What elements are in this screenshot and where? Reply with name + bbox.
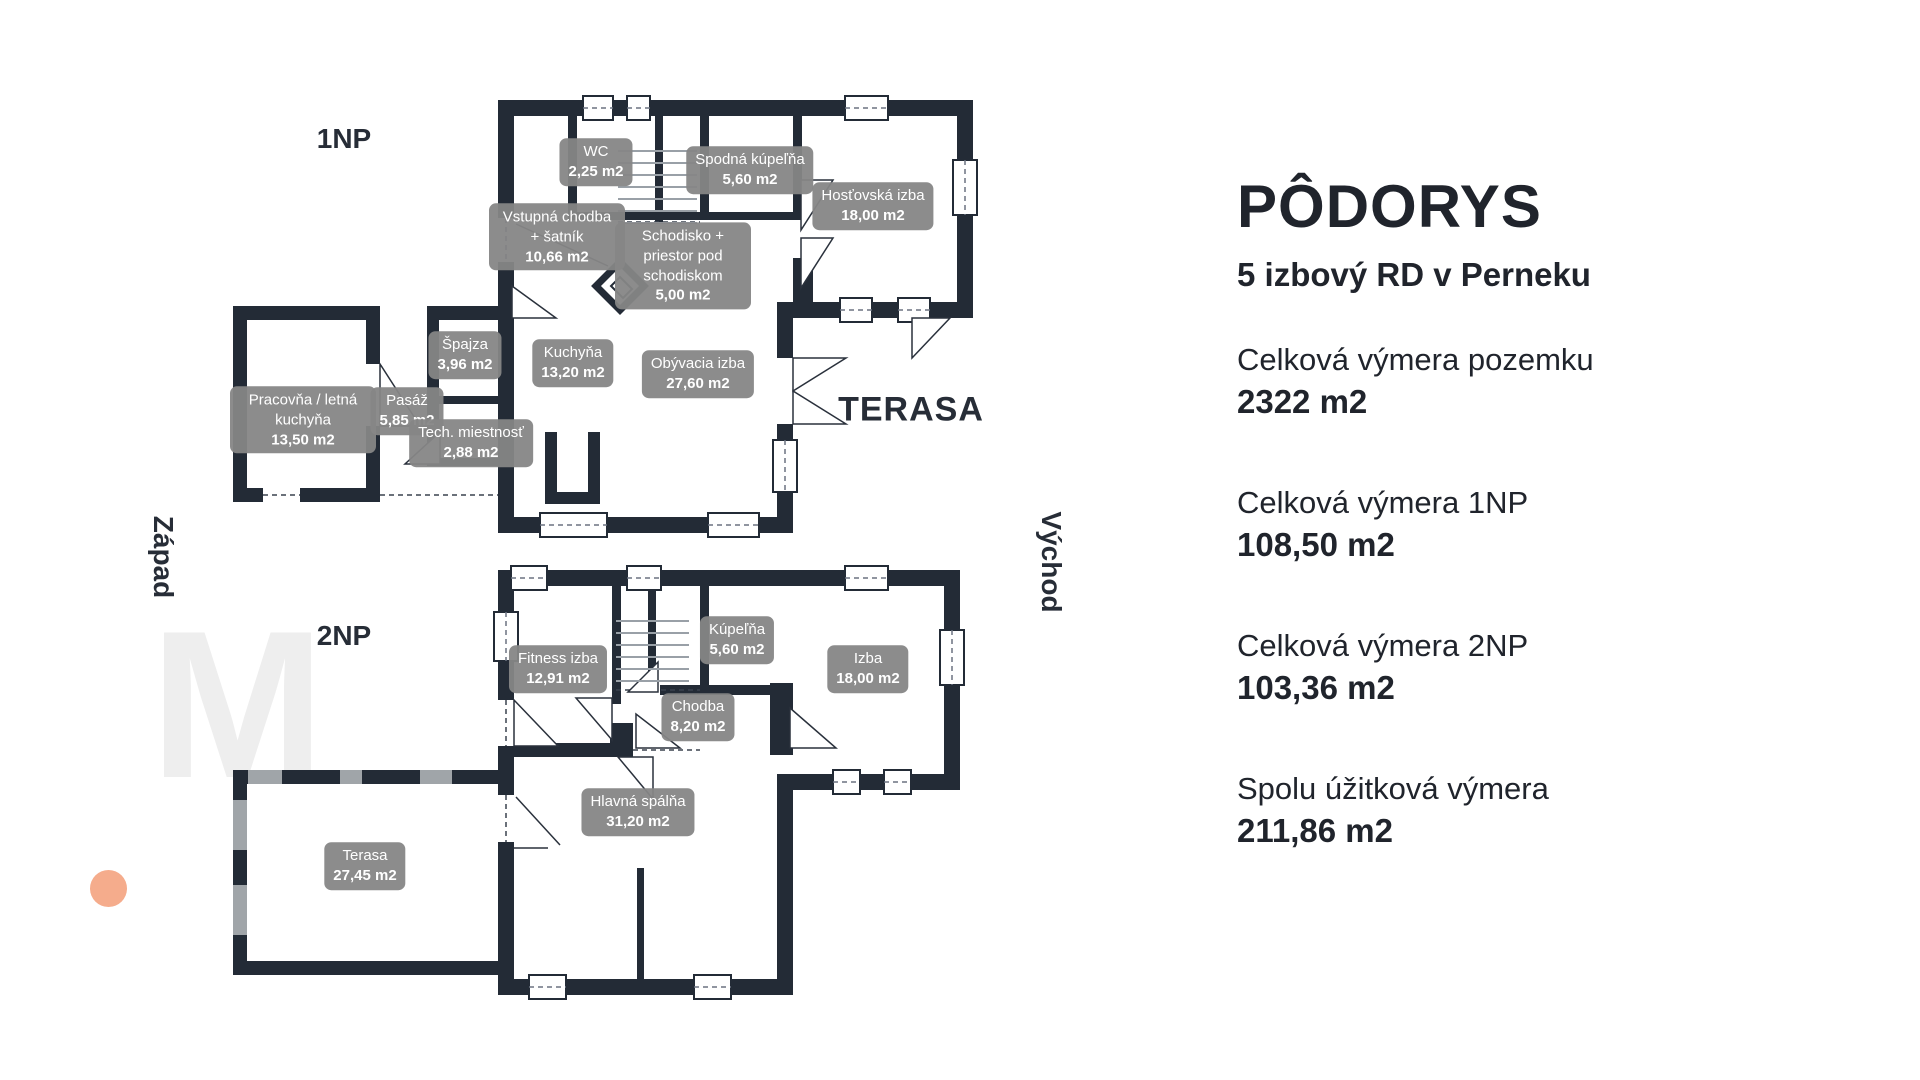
room-label-izba: Izba 18,00 m2 [827, 645, 908, 693]
room-label-vstupna-chodba: Vstupná chodba + šatník 10,66 m2 [489, 203, 625, 270]
stat-label: Celková výmera pozemku [1237, 340, 1797, 380]
page-title: PÔDORYS [1237, 172, 1542, 241]
room-label-spajza: Špajza 3,96 m2 [428, 331, 501, 379]
terrace-label: TERASA [838, 391, 984, 430]
room-label-tech-miestnost: Tech. miestnosť 2,88 m2 [409, 419, 533, 467]
room-label-hlavna-spalna: Hlavná spálňa 31,20 m2 [581, 788, 694, 836]
room-label-terasa: Terasa 27,45 m2 [324, 842, 405, 890]
stat-label: Celková výmera 2NP [1237, 626, 1797, 666]
stat-value: 211,86 m2 [1237, 809, 1797, 853]
stat-plot-area: Celková výmera pozemku 2322 m2 [1237, 340, 1797, 424]
room-label-kupelna: Kúpeľňa 5,60 m2 [700, 616, 774, 664]
floor1-title: 1NP [317, 123, 371, 155]
room-label-wc: WC 2,25 m2 [559, 138, 632, 186]
stat-total-usable-area: Spolu úžitková výmera 211,86 m2 [1237, 769, 1797, 853]
room-label-spodna-kupelna: Spodná kúpeľňa 5,60 m2 [686, 146, 813, 194]
stairs-2np [616, 620, 689, 692]
stats-list: Celková výmera pozemku 2322 m2 Celková v… [1237, 340, 1797, 912]
stat-label: Celková výmera 1NP [1237, 483, 1797, 523]
room-label-chodba: Chodba 8,20 m2 [661, 693, 734, 741]
room-label-obyvacia-izba: Obývacia izba 27,60 m2 [642, 350, 754, 398]
room-label-kuchyna: Kuchyňa 13,20 m2 [532, 339, 613, 387]
stat-area-2np: Celková výmera 2NP 103,36 m2 [1237, 626, 1797, 710]
stat-value: 2322 m2 [1237, 380, 1797, 424]
stat-value: 103,36 m2 [1237, 666, 1797, 710]
room-label-fitness-izba: Fitness izba 12,91 m2 [509, 645, 607, 693]
floor2-title: 2NP [317, 620, 371, 652]
room-label-hostovska-izba: Hosťovská izba 18,00 m2 [812, 182, 933, 230]
accent-dot [90, 870, 127, 907]
compass-west-label: Západ [147, 516, 179, 598]
stat-label: Spolu úžitková výmera [1237, 769, 1797, 809]
floorplan-page: M [0, 0, 1920, 1080]
room-label-pracovna: Pracovňa / letná kuchyňa 13,50 m2 [230, 386, 376, 453]
room-label-schodisko: Schodisko + priestor pod schodiskom 5,00… [615, 222, 751, 309]
page-subtitle: 5 izbový RD v Perneku [1237, 256, 1591, 294]
stat-area-1np: Celková výmera 1NP 108,50 m2 [1237, 483, 1797, 567]
stat-value: 108,50 m2 [1237, 523, 1797, 567]
compass-east-label: Východ [1035, 511, 1067, 612]
